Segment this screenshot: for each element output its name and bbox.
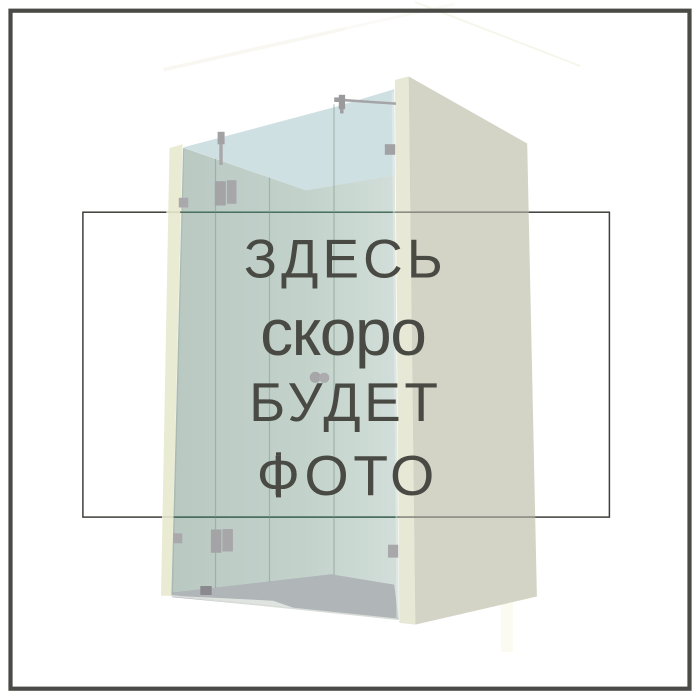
svg-text:БУДЕТ: БУДЕТ — [249, 371, 441, 433]
svg-text:ФОТО: ФОТО — [257, 444, 439, 508]
svg-text:ЗДЕСЬ: ЗДЕСЬ — [244, 228, 447, 290]
svg-text:скоро: скоро — [260, 295, 425, 369]
